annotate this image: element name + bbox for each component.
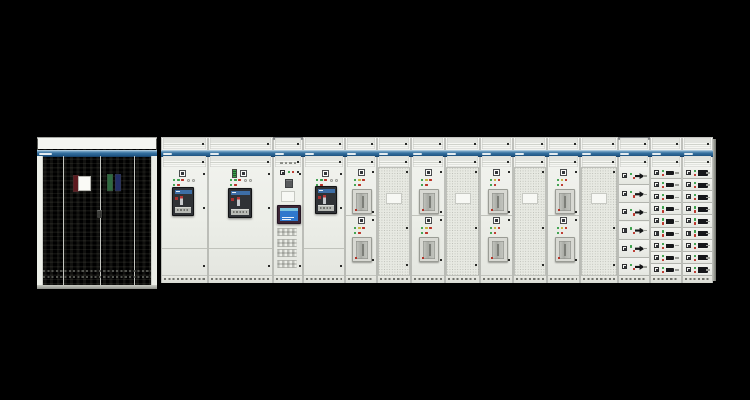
drawer-unit[interactable]: [619, 222, 649, 240]
led-red: [565, 227, 567, 229]
led-red: [498, 227, 500, 229]
led-green: [421, 232, 423, 234]
indicator-core: [360, 219, 363, 222]
breaker-slot: [497, 196, 499, 208]
withdrawable-drawer-stack[interactable]: [683, 167, 712, 276]
blank-label-plate: [522, 193, 538, 204]
led-red: [694, 198, 696, 200]
drawer-handle[interactable]: [666, 256, 674, 260]
molded-case-breaker[interactable]: [555, 237, 575, 262]
led-green: [490, 227, 492, 229]
led-red: [662, 247, 664, 249]
indicator-meter: [322, 170, 329, 177]
drawer-label: [643, 194, 647, 195]
drawer-handle[interactable]: [666, 232, 674, 236]
led-green: [557, 232, 559, 234]
indicator-meter: [686, 243, 691, 248]
indicator-meter: [622, 246, 627, 251]
ventilated-mesh-door[interactable]: [446, 167, 479, 276]
brand-wordmark: [163, 153, 172, 156]
breaker-base-panel: [318, 205, 334, 211]
drawer-handle[interactable]: [666, 195, 674, 199]
drawer-label: [706, 269, 710, 270]
kick-perforation: [211, 278, 270, 280]
led-red: [429, 227, 431, 229]
breaker-base-panel: [175, 207, 191, 213]
drawer-unit[interactable]: [651, 252, 681, 264]
screw: [406, 171, 408, 173]
kick-perforation: [380, 278, 408, 280]
indicator-meter: [654, 218, 659, 223]
led-green: [490, 184, 492, 186]
led-red: [694, 222, 696, 224]
screw: [405, 143, 407, 145]
screw: [406, 227, 408, 229]
terminal-block-group: [277, 239, 297, 247]
feeder-compartment-door[interactable]: [412, 167, 444, 276]
indicator-meter: [280, 170, 285, 175]
led-green: [354, 184, 356, 186]
breaker-red-indicator: [558, 209, 560, 211]
drawer-unit[interactable]: [683, 191, 712, 203]
ventilated-mesh-door[interactable]: [378, 167, 410, 276]
ventilation-louver: [447, 138, 478, 149]
pushbutton[interactable]: [335, 179, 338, 182]
door-seam: [134, 156, 135, 285]
indicator-core: [624, 248, 626, 250]
screw: [508, 259, 510, 261]
kick-plate: [378, 275, 410, 283]
led-green: [662, 243, 664, 245]
breaker-slot: [362, 196, 364, 208]
led-green: [557, 179, 559, 181]
breaker-face: [559, 241, 571, 259]
screw: [297, 161, 299, 163]
indicator-meter: [686, 194, 691, 199]
indicator-meter: [358, 169, 365, 176]
screw: [339, 143, 341, 145]
molded-case-breaker[interactable]: [488, 189, 508, 214]
door-seam-line: [162, 248, 207, 249]
cabinet-top-strip: [38, 138, 156, 149]
led-green: [173, 184, 175, 186]
led-red: [494, 184, 496, 186]
ventilated-mesh-door[interactable]: [514, 167, 546, 276]
drawer-unit[interactable]: [651, 215, 681, 227]
breaker-face: [356, 241, 368, 259]
cabinet-section-incomer-acb-2: [208, 137, 273, 283]
led-green: [490, 179, 492, 181]
led-red: [498, 179, 500, 181]
led-red: [358, 232, 360, 234]
blank-label-plate: [455, 193, 471, 204]
screw: [574, 161, 576, 163]
screw: [707, 161, 709, 163]
indicator-core: [427, 219, 430, 222]
drawer-label: [706, 233, 710, 234]
led-green: [694, 182, 696, 184]
withdrawable-drawer-stack[interactable]: [651, 167, 681, 276]
led-red: [292, 171, 294, 173]
ventilation-louver: [620, 138, 648, 149]
indicator-meter: [686, 255, 691, 260]
breaker-compartment-door[interactable]: [209, 167, 272, 276]
indicator-meter: [622, 228, 627, 233]
breaker-label-mark: [232, 192, 237, 193]
indicator-core: [656, 232, 658, 234]
drawer-unit[interactable]: [651, 167, 681, 179]
screw: [439, 143, 441, 145]
led-red: [662, 186, 664, 188]
drawer-unit[interactable]: [651, 264, 681, 276]
brand-wordmark: [549, 153, 558, 156]
screw: [297, 143, 299, 145]
breaker-red-button: [231, 198, 234, 201]
ventilation-louver: [379, 138, 409, 149]
drawer-label: [675, 172, 679, 173]
ventilated-mesh-door[interactable]: [581, 167, 617, 276]
screw: [340, 207, 342, 209]
led-red: [633, 195, 635, 197]
led-red: [633, 213, 635, 215]
drawer-label: [675, 184, 679, 185]
screw: [542, 171, 544, 173]
indicator-meter: [622, 191, 627, 196]
mini-terminal: [289, 162, 292, 165]
drawer-unit[interactable]: [683, 203, 712, 215]
led-green: [630, 209, 632, 211]
drawer-label: [675, 221, 679, 222]
drawer-handle[interactable]: [666, 268, 674, 272]
led-red: [694, 271, 696, 273]
molded-case-breaker[interactable]: [352, 189, 372, 214]
breaker-face: [356, 193, 368, 211]
terminal-block-group: [277, 249, 297, 257]
kick-perforation: [653, 278, 679, 280]
led-green: [694, 230, 696, 232]
screw: [203, 173, 205, 175]
indicator-core: [656, 172, 658, 174]
brand-wordmark: [515, 153, 524, 156]
drawer-unit[interactable]: [683, 179, 712, 191]
breaker-handle[interactable]: [180, 196, 183, 205]
breaker-slot: [362, 244, 364, 256]
screw: [707, 143, 709, 145]
screw: [440, 219, 442, 221]
indicator-meter: [686, 267, 691, 272]
door-seam-line: [548, 215, 579, 216]
breaker-slot: [497, 244, 499, 256]
cabinet-section-mcc-drawers-a: [618, 137, 650, 283]
indicator-core: [656, 184, 658, 186]
led-red: [662, 234, 664, 236]
control-compartment-door[interactable]: [274, 167, 302, 276]
led-red: [662, 198, 664, 200]
molded-case-breaker[interactable]: [419, 237, 439, 262]
led-red: [324, 179, 326, 181]
air-circuit-breaker[interactable]: [315, 186, 337, 214]
indicator-meter: [358, 217, 365, 224]
door-seam-line: [412, 215, 444, 216]
drawer-handle[interactable]: [666, 207, 674, 211]
led-red: [234, 184, 236, 186]
screw: [371, 143, 373, 145]
screw: [268, 173, 270, 175]
kick-perforation: [276, 278, 300, 280]
ventilation-louver: [652, 156, 680, 167]
drawer-unit[interactable]: [683, 252, 712, 264]
cabinet-section-feeder-mccb-2: [411, 137, 445, 283]
led-red: [565, 179, 567, 181]
cabinet-section-feeder-mccb-3: [480, 137, 513, 283]
led-yellow: [561, 179, 563, 181]
led-green: [234, 179, 236, 181]
indicator-core: [360, 171, 363, 174]
indicator-meter: [654, 182, 659, 187]
blank-label-plate: [591, 193, 607, 204]
ventilation-louver: [582, 138, 616, 149]
breaker-compartment-door[interactable]: [304, 167, 344, 276]
ventilation-louver: [482, 138, 511, 149]
kick-plate: [304, 275, 344, 283]
blank-label-plate: [386, 193, 402, 204]
indicator-meter: [622, 264, 627, 269]
kick-plate: [581, 275, 617, 283]
drawer-unit[interactable]: [651, 240, 681, 252]
brand-wordmark: [482, 153, 491, 156]
kick-plate: [446, 275, 479, 283]
led-red: [633, 232, 635, 234]
ventilation-louver: [163, 138, 206, 149]
drawer-unit[interactable]: [651, 228, 681, 240]
led-red: [425, 232, 427, 234]
led-red: [561, 184, 563, 186]
screw: [474, 161, 476, 163]
ventilation-louver: [305, 156, 343, 167]
drawer-unit[interactable]: [619, 203, 649, 221]
drawer-handle[interactable]: [666, 183, 674, 187]
pushbutton[interactable]: [187, 179, 190, 182]
drawer-handle[interactable]: [666, 244, 674, 248]
withdrawable-drawer-stack[interactable]: [619, 167, 649, 276]
door-handle[interactable]: [97, 210, 102, 218]
cabinet-section-mcc-drawers-c: [682, 137, 713, 283]
breaker-face: [559, 193, 571, 211]
led-green: [694, 170, 696, 172]
drawer-label: [706, 184, 710, 185]
navy-document-clip: [115, 174, 121, 191]
drawer-label: [706, 209, 710, 210]
led-red: [694, 210, 696, 212]
drawer-label: [643, 212, 647, 213]
indicator-core: [656, 208, 658, 210]
green-document-clip: [107, 174, 113, 191]
led-red: [425, 184, 427, 186]
screw: [613, 171, 615, 173]
screw: [542, 227, 544, 229]
drawer-label: [675, 269, 679, 270]
led-green: [662, 194, 664, 196]
breaker-slot: [429, 196, 431, 208]
feeder-compartment-door[interactable]: [548, 167, 579, 276]
molded-case-breaker[interactable]: [419, 189, 439, 214]
cabinet-section-incomer-acb-1: [161, 137, 208, 283]
pushbutton[interactable]: [244, 179, 247, 182]
ventilation-louver: [515, 138, 545, 149]
molded-case-breaker[interactable]: [488, 237, 508, 262]
air-circuit-breaker[interactable]: [172, 187, 194, 216]
indicator-core: [688, 196, 690, 198]
indicator-core: [624, 175, 626, 177]
indicator-meter: [493, 169, 500, 176]
ventilation-louver: [684, 156, 711, 167]
drawer-unit[interactable]: [619, 185, 649, 203]
drawer-handle[interactable]: [666, 219, 674, 223]
drawer-handle[interactable]: [666, 171, 674, 175]
pushbutton[interactable]: [192, 179, 195, 182]
indicator-core: [562, 219, 565, 222]
molded-case-breaker[interactable]: [352, 237, 372, 262]
screw: [475, 227, 477, 229]
drawer-unit[interactable]: [683, 264, 712, 276]
led-green: [557, 184, 559, 186]
screw: [613, 264, 615, 266]
screw: [406, 264, 408, 266]
led-yellow: [494, 179, 496, 181]
led-red: [633, 268, 635, 270]
drawer-label: [643, 175, 647, 176]
kick-perforation: [583, 278, 615, 280]
hmi-screen: [280, 208, 298, 221]
led-red: [177, 184, 179, 186]
label-plate: [281, 191, 295, 202]
door-seam-line: [346, 215, 376, 216]
drawer-label: [706, 197, 710, 198]
drawer-label: [706, 245, 710, 246]
led-green: [630, 173, 632, 175]
screw: [644, 161, 646, 163]
kick-plate: [209, 275, 272, 283]
drawer-label: [675, 245, 679, 246]
breaker-handle[interactable]: [323, 195, 326, 204]
drawer-unit[interactable]: [619, 167, 649, 185]
kick-plate: [514, 275, 546, 283]
brand-wordmark: [275, 153, 284, 156]
led-red: [429, 179, 431, 181]
breaker-red-indicator: [422, 257, 424, 259]
screw: [203, 207, 205, 209]
kick-perforation: [448, 278, 477, 280]
white-label-card: [78, 176, 91, 191]
indicator-core: [495, 171, 498, 174]
feeder-compartment-door[interactable]: [346, 167, 376, 276]
indicator-core: [688, 184, 690, 186]
brand-wordmark: [39, 153, 52, 156]
drawer-unit[interactable]: [683, 240, 712, 252]
brand-wordmark: [447, 153, 456, 156]
breaker-compartment-door[interactable]: [162, 167, 207, 276]
brand-wordmark: [620, 153, 629, 156]
drawer-unit[interactable]: [619, 258, 649, 276]
pushbutton[interactable]: [249, 179, 252, 182]
breaker-red-indicator: [422, 209, 424, 211]
indicator-meter: [686, 170, 691, 175]
cabinet-section-feeder-mccb-4: [547, 137, 580, 283]
drawer-label: [675, 209, 679, 210]
ventilation-louver: [347, 156, 375, 167]
indicator-meter: [686, 218, 691, 223]
led-green: [662, 255, 664, 257]
brand-wordmark: [379, 153, 388, 156]
brand-wordmark: [413, 153, 422, 156]
cabinet-section-vented-panel-1: [377, 137, 411, 283]
led-yellow: [494, 227, 496, 229]
drawer-unit[interactable]: [683, 167, 712, 179]
screw: [676, 143, 678, 145]
breaker-label-mark: [319, 190, 324, 191]
screw: [340, 173, 342, 175]
drawer-unit[interactable]: [683, 228, 712, 240]
kick-plate: [412, 275, 444, 283]
cabinet-right-stile: [151, 156, 157, 289]
air-circuit-breaker[interactable]: [228, 188, 252, 218]
hmi-touchscreen[interactable]: [277, 205, 301, 224]
screw: [372, 211, 374, 213]
breaker-label-mark: [176, 191, 181, 192]
ventilation-louver: [275, 156, 301, 167]
cabinet-section-feeder-mccb-1: [345, 137, 377, 283]
screw: [440, 171, 442, 173]
screw: [575, 219, 577, 221]
led-green: [630, 264, 632, 266]
drawer-unit[interactable]: [683, 215, 712, 227]
drawer-unit[interactable]: [651, 179, 681, 191]
breaker-base-panel: [231, 209, 249, 215]
led-green: [354, 179, 356, 181]
indicator-core: [624, 193, 626, 195]
feeder-compartment-door[interactable]: [481, 167, 512, 276]
indicator-core: [562, 171, 565, 174]
led-yellow: [358, 227, 360, 229]
drawer-unit[interactable]: [619, 240, 649, 258]
breaker-slot: [564, 196, 566, 208]
breaker-handle[interactable]: [237, 197, 240, 206]
drawer-unit[interactable]: [651, 191, 681, 203]
led-red: [662, 222, 664, 224]
indicator-meter: [654, 255, 659, 260]
kick-perforation: [414, 278, 442, 280]
led-red: [494, 232, 496, 234]
end-side-panel: [713, 139, 716, 281]
drawer-unit[interactable]: [651, 203, 681, 215]
indicator-core: [688, 220, 690, 222]
indicator-core: [427, 171, 430, 174]
indicator-core: [656, 196, 658, 198]
indicator-meter: [686, 182, 691, 187]
protection-relay: [285, 179, 293, 188]
switchgear-lineup-photo: Low-voltage switchgear and motor control…: [0, 0, 750, 400]
ventilation-louver: [482, 156, 511, 167]
indicator-core: [181, 172, 184, 175]
molded-case-breaker[interactable]: [555, 189, 575, 214]
kick-plate: [162, 275, 207, 283]
kick-plate: [481, 275, 512, 283]
screw: [507, 143, 509, 145]
mini-terminal: [285, 162, 288, 165]
drawer-label: [675, 257, 679, 258]
pushbutton[interactable]: [330, 179, 333, 182]
indicator-core: [688, 232, 690, 234]
